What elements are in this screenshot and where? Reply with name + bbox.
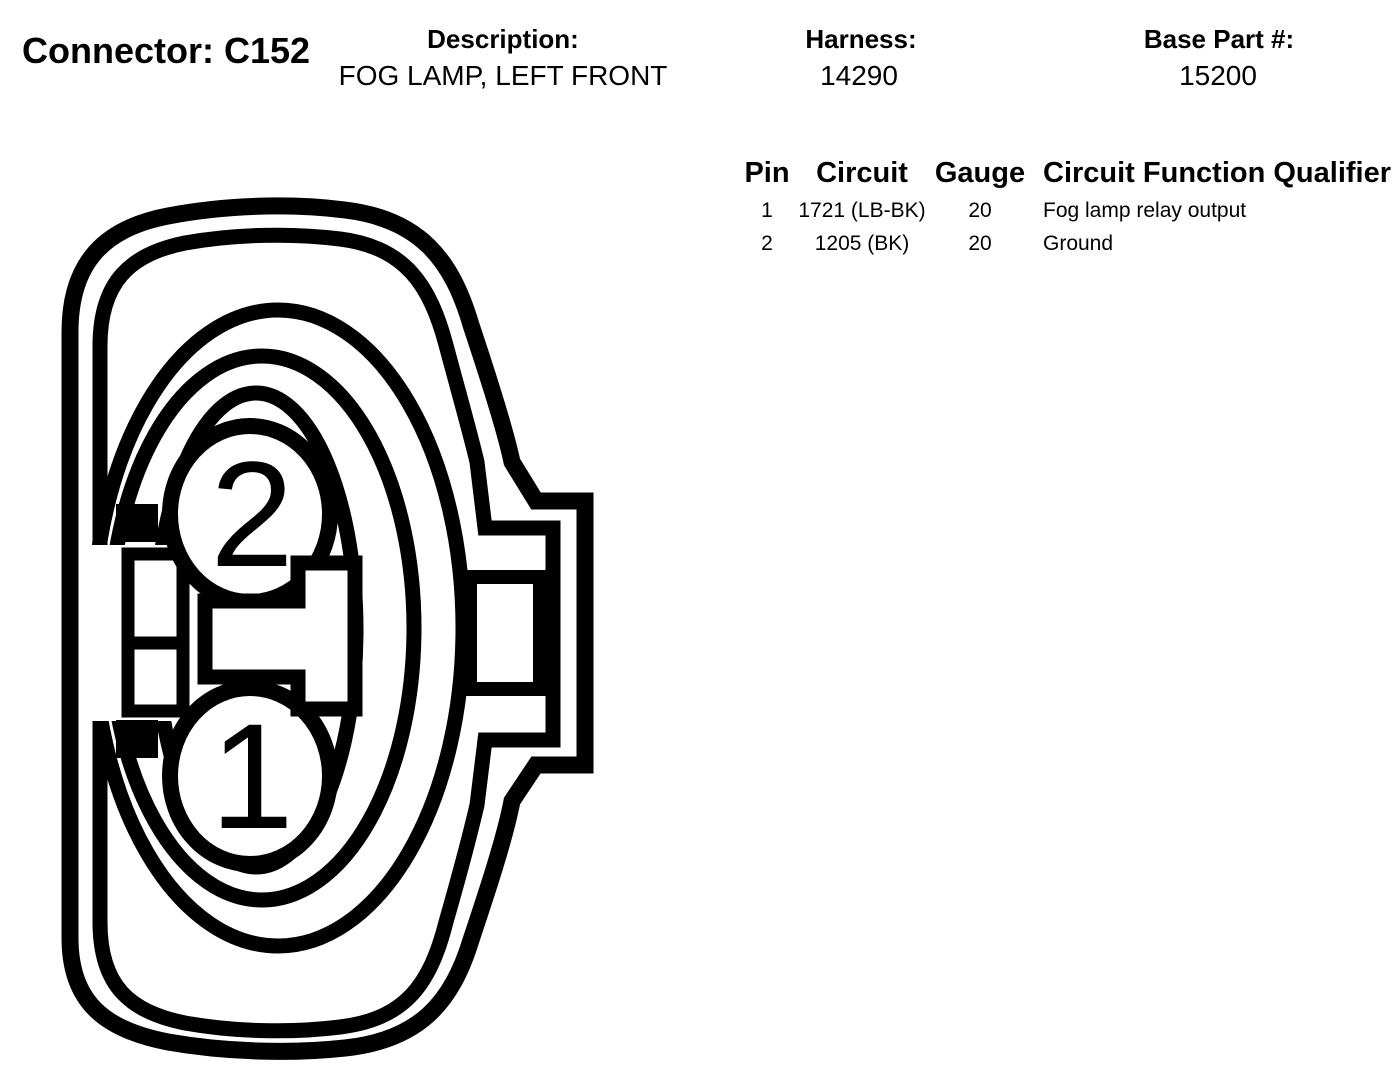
connector-diagram: 2 1 bbox=[0, 0, 1392, 1066]
latch-tab-bracket bbox=[470, 577, 540, 689]
lock-box-upper bbox=[128, 554, 183, 643]
lock-notch-bottom bbox=[116, 720, 158, 758]
lock-box-lower bbox=[128, 643, 183, 711]
lock-notch-top bbox=[116, 504, 158, 542]
pin-1-number: 1 bbox=[210, 692, 293, 860]
pin-2-number: 2 bbox=[210, 430, 293, 598]
connector-sheet: Connector: C152 Description: FOG LAMP, L… bbox=[0, 0, 1392, 1066]
